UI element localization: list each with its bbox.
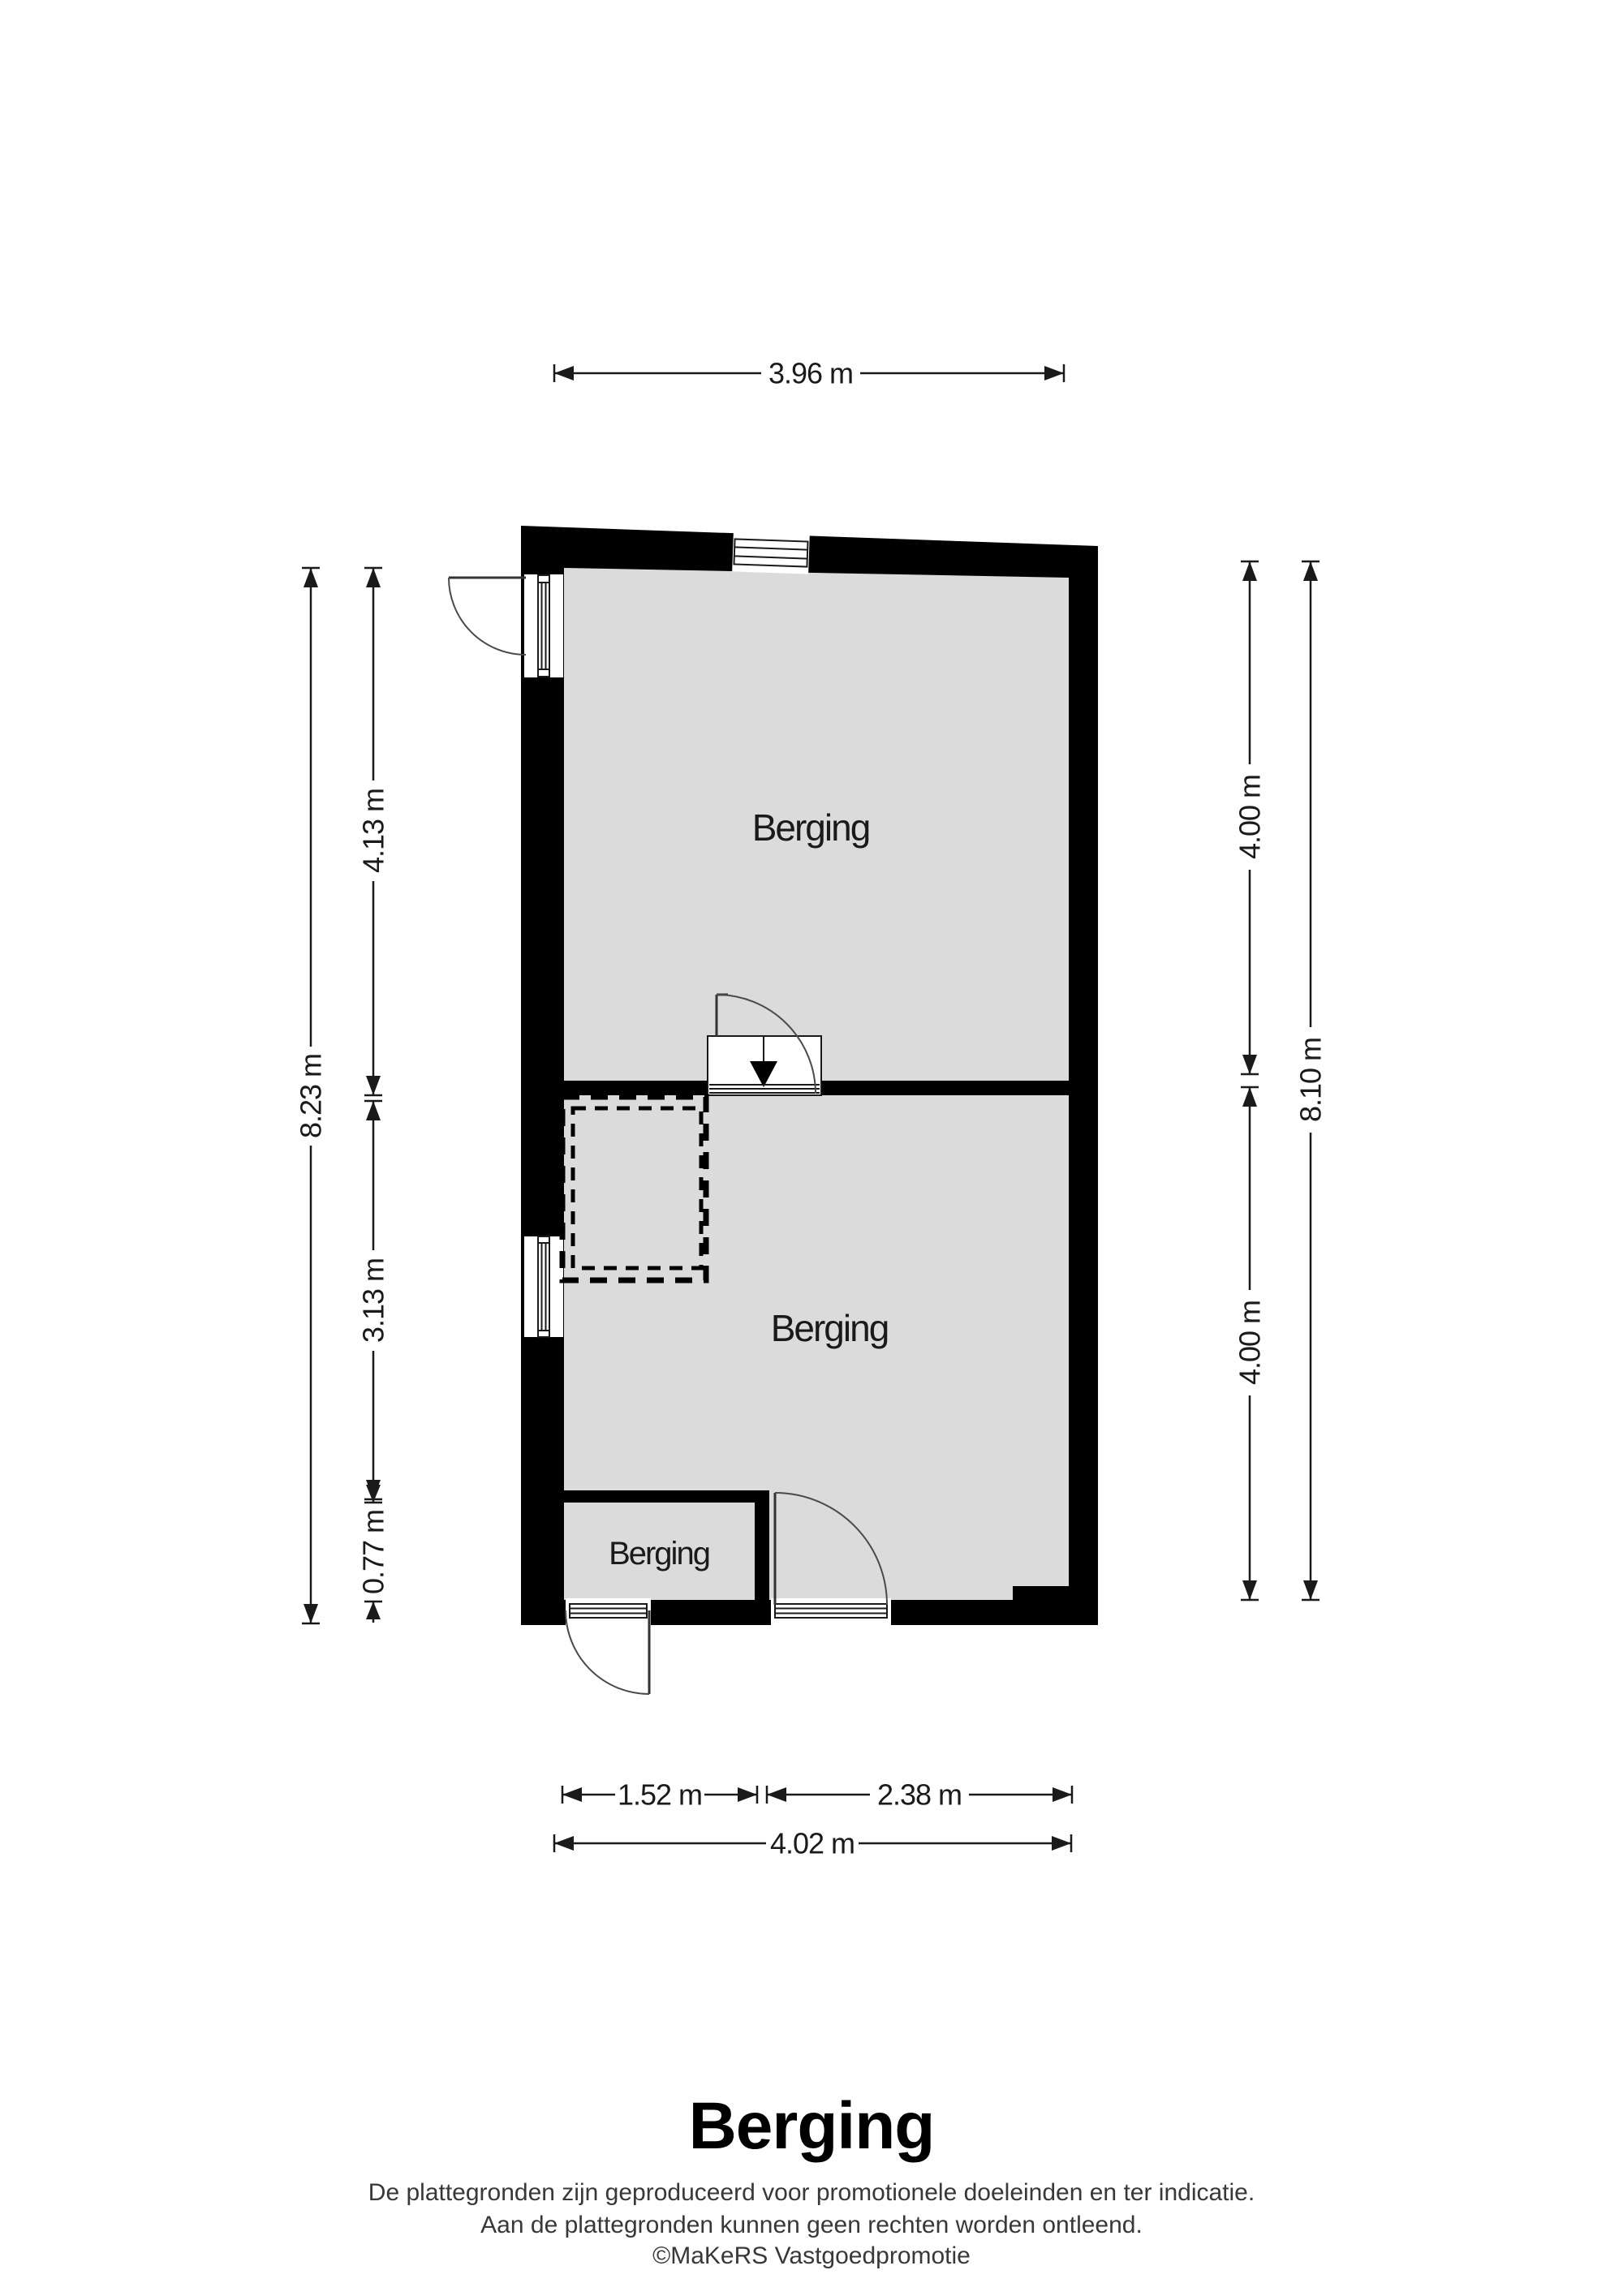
dimension-label: 4.02 m: [770, 1827, 855, 1860]
dimension-left-lower: 0.77 m: [357, 1481, 390, 1623]
plan-title: Berging: [689, 2089, 935, 2163]
dimension-label: 0.77 m: [357, 1510, 390, 1594]
interior-wall-smallroom-right: [755, 1490, 769, 1602]
door-exterior-left: [449, 574, 563, 677]
dimension-left-middle: 3.13 m: [357, 1101, 390, 1499]
footer: Berging De plattegronden zijn geproducee…: [368, 2089, 1255, 2269]
floorplan-page: Berging Berging Berging 3.96 m 8.23 m: [0, 0, 1623, 2296]
dimension-label: 4.00 m: [1233, 775, 1267, 859]
dimension-label: 2.38 m: [877, 1778, 962, 1812]
room-label-lower: Berging: [771, 1307, 889, 1349]
room-label-upper: Berging: [752, 806, 870, 849]
dimension-label: 3.13 m: [357, 1258, 390, 1343]
window-left: [524, 1236, 563, 1337]
dimension-label: 3.96 m: [768, 357, 853, 390]
dimension-bottom-inner-left: 1.52 m: [562, 1778, 757, 1812]
dimension-label: 8.23 m: [295, 1054, 328, 1138]
dimension-bottom-total: 4.02 m: [554, 1827, 1071, 1860]
dimension-right-lower: 4.00 m: [1233, 1087, 1267, 1600]
door-exterior-smallroom: [566, 1598, 651, 1694]
interior-wall-middle-right: [821, 1081, 1069, 1095]
door-swing-arc: [449, 578, 526, 655]
building: Berging Berging Berging: [449, 526, 1098, 1694]
dimension-label: 8.10 m: [1294, 1038, 1328, 1122]
dimension-right-upper: 4.00 m: [1233, 561, 1267, 1074]
floorplan-canvas: Berging Berging Berging 3.96 m 8.23 m: [0, 0, 1623, 2296]
copyright-credit: ©MaKeRS Vastgoedpromotie: [652, 2242, 971, 2269]
room-label-small: Berging: [609, 1536, 709, 1572]
disclaimer-line-2: Aan de plattegronden kunnen geen rechten…: [480, 2212, 1143, 2238]
dimension-left-total: 8.23 m: [295, 568, 328, 1623]
dimension-right-total: 8.10 m: [1294, 561, 1328, 1600]
interior-wall-middle-left: [564, 1081, 708, 1095]
dimension-label: 4.13 m: [357, 789, 390, 873]
dimension-label: 4.00 m: [1233, 1301, 1267, 1385]
dimension-label: 1.52 m: [618, 1778, 702, 1812]
interior-wall-smallroom-top: [562, 1490, 769, 1503]
dimension-top-width: 3.96 m: [554, 357, 1064, 390]
dimension-left-upper: 4.13 m: [357, 568, 390, 1095]
dimension-bottom-inner-right: 2.38 m: [767, 1778, 1072, 1812]
disclaimer-line-1: De plattegronden zijn geproduceerd voor …: [368, 2179, 1255, 2206]
window-top: [732, 531, 810, 574]
